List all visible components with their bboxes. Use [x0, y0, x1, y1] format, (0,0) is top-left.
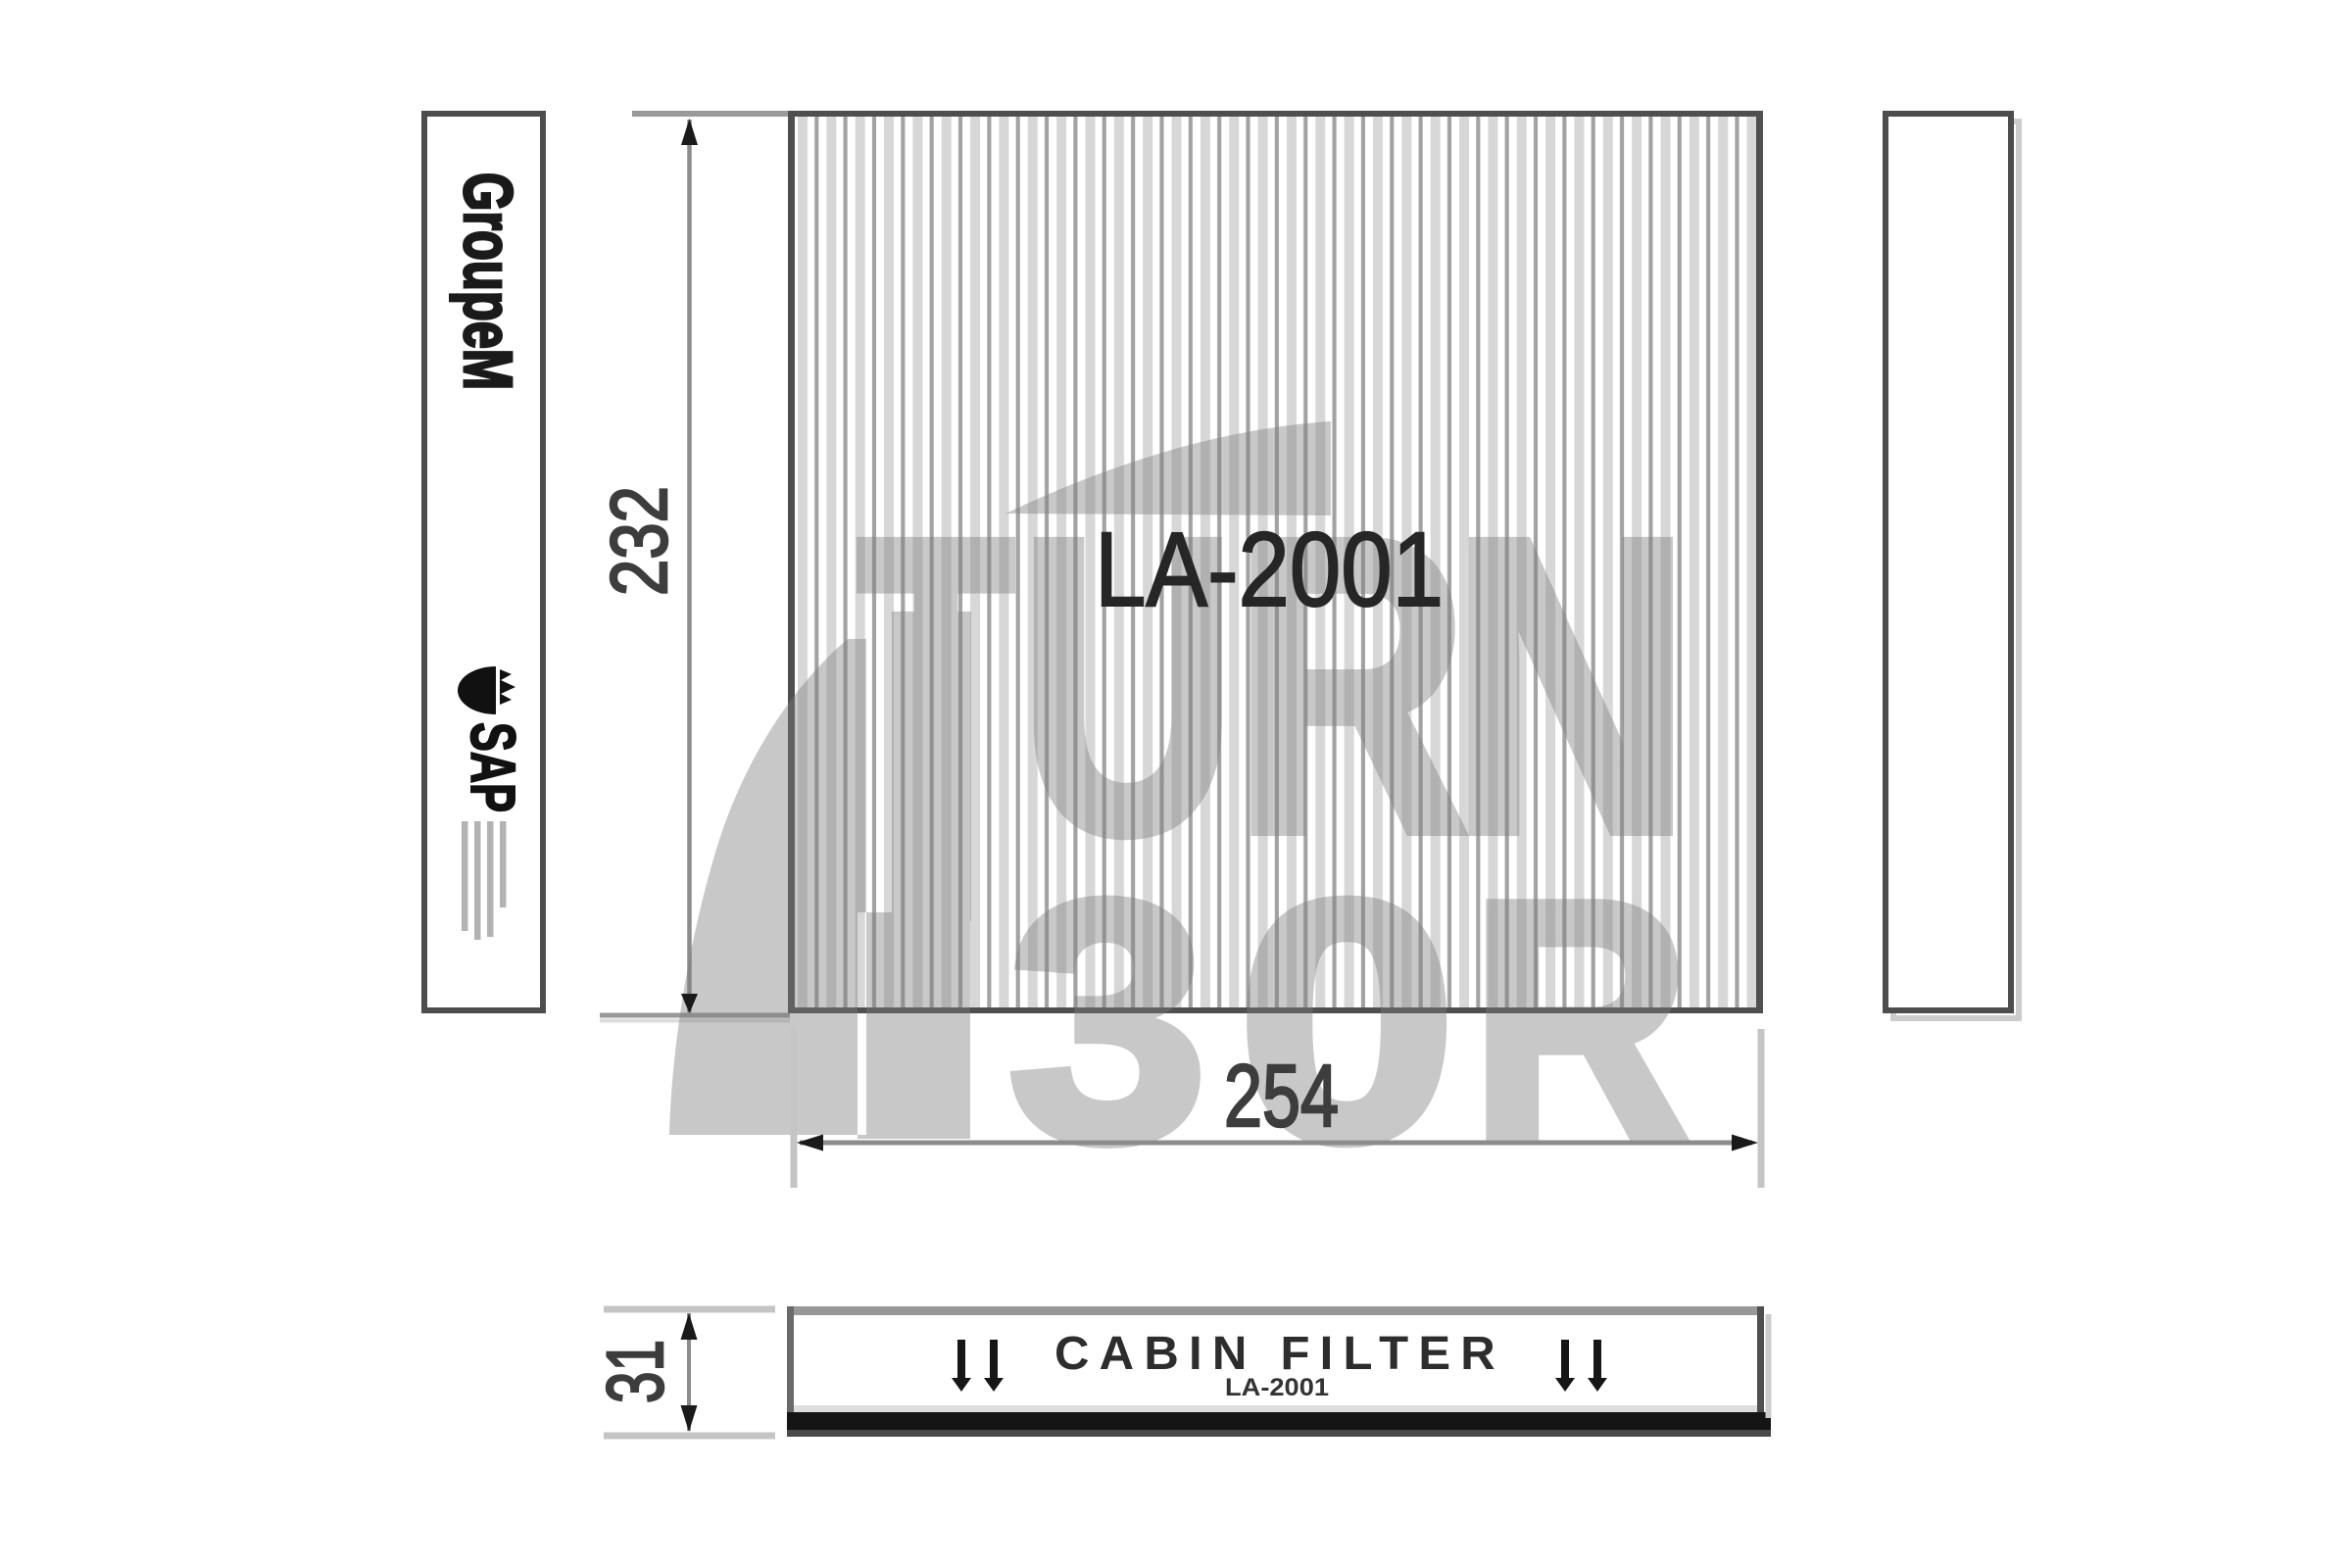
svg-text:CABIN FILTER: CABIN FILTER [1054, 1328, 1505, 1380]
svg-text:3: 3 [1007, 830, 1208, 1213]
svg-text:232: 232 [595, 486, 684, 596]
svg-text:31: 31 [591, 1340, 680, 1403]
svg-text:SAP: SAP [458, 722, 528, 812]
svg-text:254: 254 [1224, 1048, 1339, 1146]
svg-text:R: R [1470, 830, 1690, 1213]
svg-text:LA-2001: LA-2001 [1225, 1374, 1329, 1401]
svg-text:LA-2001: LA-2001 [1095, 510, 1444, 628]
svg-text:GroupeM: GroupeM [450, 172, 526, 390]
svg-text:T: T [857, 451, 1015, 920]
svg-text:0: 0 [1237, 830, 1457, 1213]
